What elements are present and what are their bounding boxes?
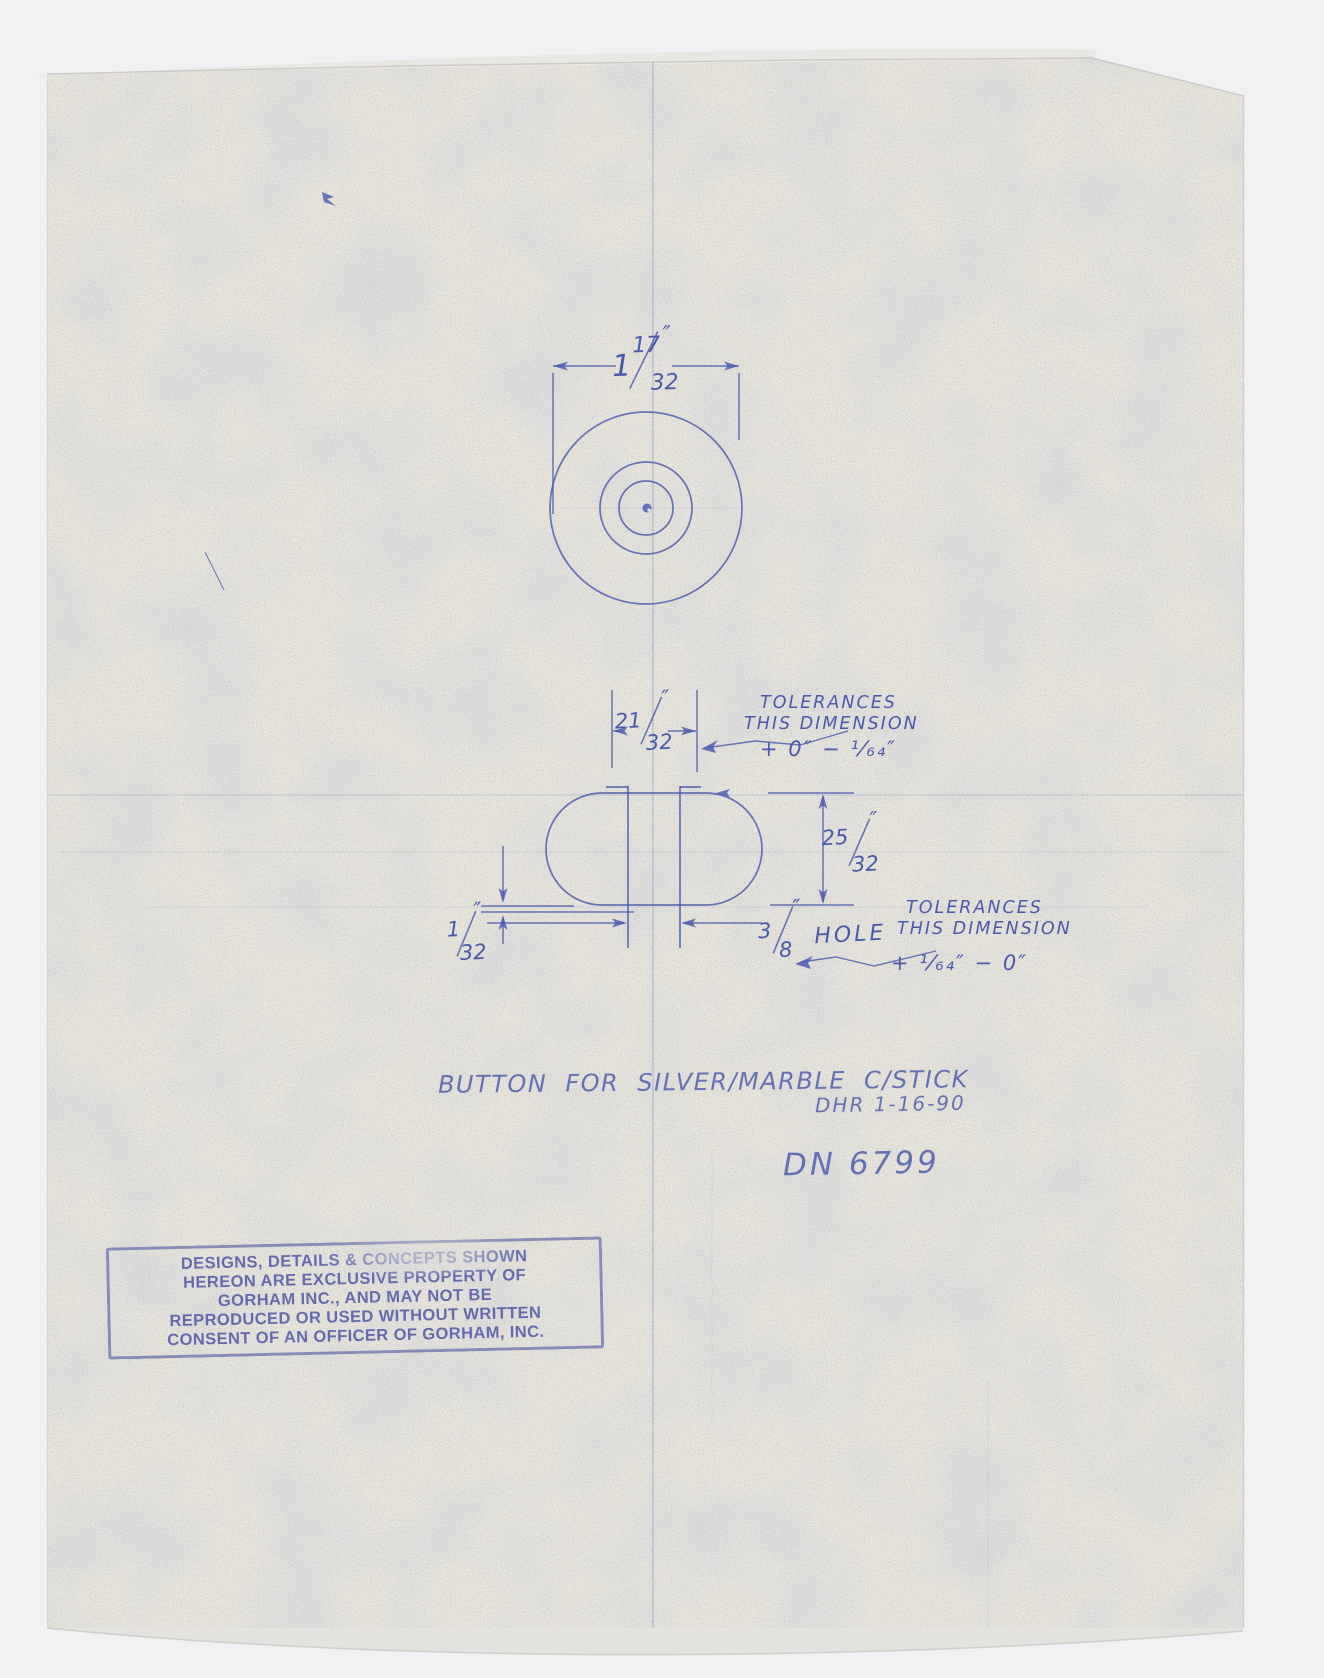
svg-text:HOLE: HOLE [814,921,887,950]
svg-text:″: ″ [661,686,670,710]
stamp-line: GORHAM INC., AND MAY NOT BE [112,1283,598,1313]
svg-text:THIS DIMENSION: THIS DIMENSION [897,919,1072,939]
author-date: DHR 1-16-90 [815,1091,966,1118]
photographed-blueprint-page: { "palette": { "ink": "#4a59ac", "paper"… [0,0,1324,1678]
svg-text:+ ¹⁄₆₄″ − 0″: + ¹⁄₆₄″ − 0″ [891,951,1028,975]
drawing-number: DN 6799 [783,1145,940,1184]
paper-sheet [47,50,1243,1628]
svg-text:THIS DIMENSION: THIS DIMENSION [744,714,919,734]
svg-text:8: 8 [778,937,793,962]
svg-text:32: 32 [645,730,673,755]
dim-denominator: 32 [650,370,679,396]
svg-text:TOLERANCES: TOLERANCES [760,693,897,713]
backdrop-left [0,76,47,1678]
stamp-line: DESIGNS, DETAILS & CONCEPTS SHOWN [111,1245,597,1275]
tolerance-note-top: TOLERANCES THIS DIMENSION + 0″ − ¹⁄₆₄″ [744,693,919,761]
svg-text:″: ″ [869,807,878,831]
svg-text:+ 0″ − ¹⁄₆₄″: + 0″ − ¹⁄₆₄″ [760,737,897,761]
dim-whole: 1 [611,348,631,384]
blueprint-sheet: 1 17 32 ″ 21 32 ″ TOLERANCES THI [0,0,1324,1678]
svg-text:TOLERANCES: TOLERANCES [906,898,1043,918]
svg-text:3: 3 [757,919,772,944]
stamp-line: HEREON ARE EXCLUSIVE PROPERTY OF [111,1264,597,1294]
svg-text:″: ″ [473,898,482,922]
svg-text:32: 32 [459,940,487,965]
svg-text:25: 25 [821,825,849,850]
dim-numerator: 17 [632,332,661,358]
gorham-property-stamp: DESIGNS, DETAILS & CONCEPTS SHOWN HEREON… [106,1236,604,1359]
svg-text:32: 32 [851,851,879,876]
svg-text:21: 21 [614,708,642,733]
backdrop-right [1244,96,1324,1678]
stamp-line: CONSENT OF AN OFFICER OF GORHAM, INC. [113,1321,599,1351]
center-hole-dot [643,504,652,513]
svg-text:1: 1 [446,917,461,942]
center-dot-highlight [647,508,650,511]
stamp-line: REPRODUCED OR USED WITHOUT WRITTEN [112,1302,598,1332]
svg-text:″: ″ [792,895,801,919]
